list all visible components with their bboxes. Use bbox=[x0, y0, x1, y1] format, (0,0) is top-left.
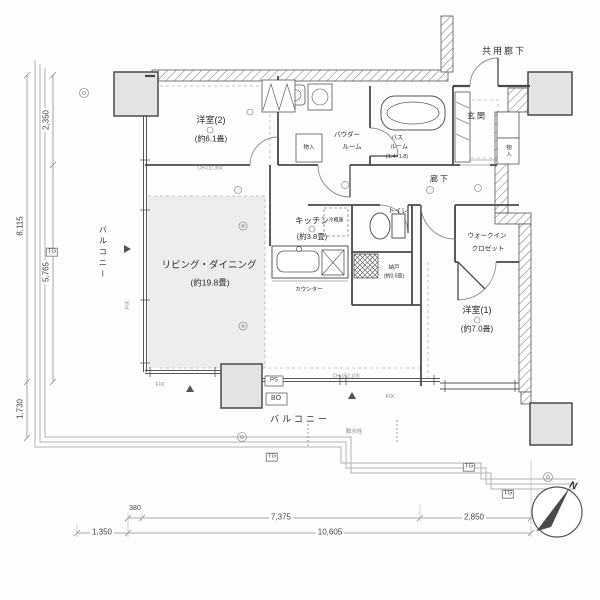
bo-marker: BO bbox=[271, 395, 281, 403]
counter-label: カウンター bbox=[295, 287, 323, 293]
bathroom-label-2: ルーム bbox=[390, 145, 408, 152]
balcony-bottom-label: バルコニー bbox=[270, 415, 330, 425]
fix-marker-2: FIX bbox=[386, 394, 395, 400]
utility-box bbox=[354, 254, 378, 278]
living-dining-size: (約19.8畳) bbox=[190, 278, 229, 287]
fix-marker-1: FIX bbox=[156, 382, 165, 388]
balcony-left-label: バルコニー bbox=[98, 226, 107, 281]
fix-marker-3: FIX bbox=[125, 301, 131, 310]
bedroom1-label: 洋室(1) bbox=[463, 306, 492, 316]
refrigerator-label: 冷蔵庫 bbox=[328, 218, 343, 224]
dim-bottom-2850: 2,850 bbox=[462, 514, 486, 523]
compass bbox=[532, 487, 582, 537]
bathtub-inner bbox=[387, 102, 439, 124]
entrance-label: 玄関 bbox=[467, 113, 487, 122]
tg-marker-bottom-1: TG bbox=[266, 453, 278, 462]
walk-in-closet-label-1: ウォークイン bbox=[468, 232, 507, 239]
living-dining-label: リビング・ダイニング bbox=[161, 261, 256, 271]
dim-left-8115: 8,115 bbox=[17, 214, 26, 237]
dim-left-2350: 2,350 bbox=[43, 108, 52, 132]
dim-bottom-380: 380 bbox=[127, 505, 143, 513]
bathroom-size: (1.4×1.8) bbox=[386, 154, 408, 160]
bedroom2-label: 洋室(2) bbox=[197, 116, 226, 126]
corridor-label: 廊下 bbox=[430, 176, 450, 185]
ceiling-height-note-1: CH-D2,350 bbox=[197, 166, 222, 172]
dim-bottom-1350: 1,350 bbox=[90, 529, 114, 538]
kitchen-size: (約3.8畳) bbox=[297, 233, 327, 241]
dim-left-5765: 5,765 bbox=[43, 260, 52, 284]
toilet-tank bbox=[392, 214, 405, 238]
dim-bottom-7375: 7,375 bbox=[269, 514, 293, 523]
tg-marker-bottom-3: TG bbox=[502, 490, 514, 499]
common-corridor-label: 共用廊下 bbox=[482, 47, 526, 57]
walk-in-closet-label-2: クロゼット bbox=[472, 245, 505, 252]
bedroom1-size: (約7.0畳) bbox=[461, 326, 493, 335]
storage-closet-label-2: 物入 bbox=[505, 145, 511, 158]
ps-marker: PS bbox=[270, 378, 278, 385]
storage-room-size: (約0.5畳) bbox=[384, 274, 404, 280]
dim-left-1730: 1,730 bbox=[17, 397, 26, 421]
bathroom-label-1: バス bbox=[391, 136, 403, 143]
kitchen-label: キッチン bbox=[295, 216, 329, 225]
water-tap-label: 散水栓 bbox=[346, 429, 363, 435]
toilet-label: トイレ bbox=[388, 207, 408, 214]
toilet-bowl bbox=[370, 213, 390, 239]
ceiling-height-note-2: CH-152,105 bbox=[333, 374, 360, 380]
floor-plan-page: 共用廊下 洋室(2) (約6.1畳) パウダー ルーム バス ルーム (1.4×… bbox=[0, 0, 600, 600]
tg-marker-bottom-2: TG bbox=[463, 463, 475, 472]
powder-room-label-1: パウダー bbox=[334, 131, 360, 138]
floorplan-drawing bbox=[0, 0, 600, 600]
storage-closet-label-1: 物入 bbox=[303, 145, 314, 151]
bedroom2-size: (約6.1畳) bbox=[195, 136, 227, 145]
faucet bbox=[297, 247, 302, 252]
tg-marker-left: TG bbox=[46, 248, 58, 257]
storage-room-label: 納戸 bbox=[388, 265, 399, 271]
kitchen-sink bbox=[277, 251, 319, 272]
entrance-closet1 bbox=[497, 112, 519, 138]
powder-room-label-2: ルーム bbox=[342, 143, 361, 150]
dim-bottom-10605: 10,605 bbox=[316, 529, 344, 538]
